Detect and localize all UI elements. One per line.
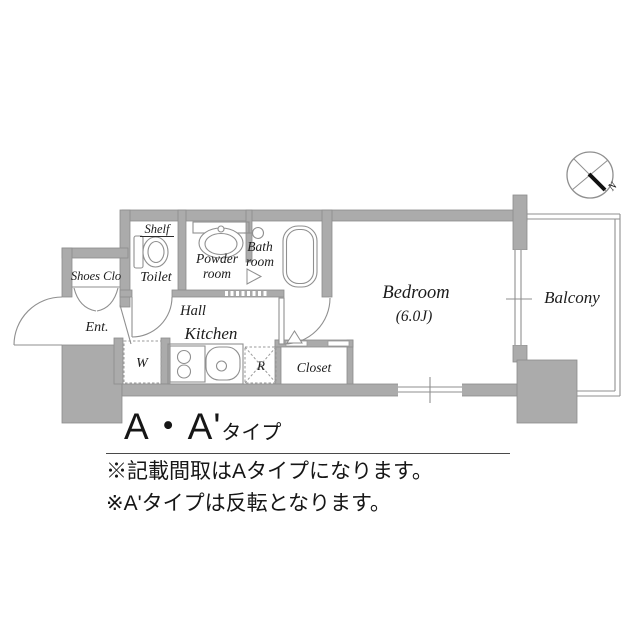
floor-plan-drawing: N Shelf Toilet Powder room Bath room Sho… xyxy=(0,0,640,640)
kitchen-sink xyxy=(206,347,240,380)
bath-faucet xyxy=(253,228,264,239)
room-label-hall: Hall xyxy=(179,303,206,319)
wall-pillar-top-right xyxy=(513,195,527,250)
toilet-icon xyxy=(134,236,168,268)
bathtub-inner xyxy=(287,230,314,284)
sink-faucet xyxy=(218,226,224,232)
plan-type-title-suffix: タイプ xyxy=(221,422,281,444)
bedroom-door-leaf xyxy=(279,298,284,344)
shoes-closet-door-arc xyxy=(74,288,96,311)
caption: A・A'タイプ ※記載間取はAタイプになります。 ※A'タイプは反転となります。 xyxy=(106,396,526,518)
wall-toilet-powder xyxy=(178,210,186,290)
window-balcony xyxy=(511,250,529,345)
bath-door-marker xyxy=(247,269,261,284)
wall-washer-kitchen xyxy=(161,338,170,384)
wall-pillar-mid-right xyxy=(513,345,527,362)
compass-north-label: N xyxy=(605,179,620,194)
compass-needle xyxy=(589,174,605,190)
stove-burner xyxy=(178,365,191,378)
caption-note-1: ※記載間取はAタイプになります。 xyxy=(106,457,526,486)
wall-bath-bedroom xyxy=(322,210,332,297)
entrance-door-arc xyxy=(14,297,62,345)
room-label-balcony: Balcony xyxy=(544,288,600,307)
fixtures xyxy=(124,222,317,384)
room-label-shoes-closet: Shoes Clo xyxy=(71,269,121,283)
room-label-powder-2: room xyxy=(203,266,231,281)
wall-bottom xyxy=(122,384,527,396)
closet-door-panel xyxy=(328,341,349,346)
plan-type-title-main: A・A' xyxy=(124,406,221,447)
caption-note-2: ※A'タイプは反転となります。 xyxy=(106,489,526,518)
room-label-washer: W xyxy=(136,356,149,371)
room-label-toilet: Toilet xyxy=(140,270,172,285)
room-label-powder-1: Powder xyxy=(195,251,239,266)
room-label-bedroom-size: (6.0J) xyxy=(396,308,433,325)
toilet-tank xyxy=(134,236,143,268)
wall-mid-left-jamb xyxy=(120,290,132,297)
room-label-entrance: Ent. xyxy=(85,320,109,335)
room-label-bath-1: Bath xyxy=(247,239,273,254)
wall-block-bottom-right xyxy=(517,360,577,423)
room-label-kitchen: Kitchen xyxy=(184,324,238,343)
kitchen-sink-drain xyxy=(217,361,227,371)
shoes-closet-door-arc xyxy=(97,288,118,311)
wall-washer-left xyxy=(114,338,123,384)
room-label-shelf: Shelf xyxy=(145,222,172,236)
caption-divider xyxy=(106,453,510,454)
compass-icon: N xyxy=(567,152,620,198)
room-label-bath-2: room xyxy=(246,254,274,269)
walls xyxy=(62,195,577,423)
plan-type-title: A・A'タイプ xyxy=(124,396,526,450)
floor-plan-page: N Shelf Toilet Powder room Bath room Sho… xyxy=(0,0,640,640)
kitchen-sink-icon xyxy=(206,347,240,380)
toilet-door-arc xyxy=(132,297,172,337)
room-label-closet: Closet xyxy=(297,360,333,375)
room-label-refrigerator: R xyxy=(256,358,265,373)
bedroom-door-marker xyxy=(287,331,302,343)
stove-burner xyxy=(178,351,191,364)
wall-closet-right xyxy=(347,340,353,390)
doors xyxy=(14,269,330,345)
room-label-bedroom: Bedroom xyxy=(382,283,449,303)
